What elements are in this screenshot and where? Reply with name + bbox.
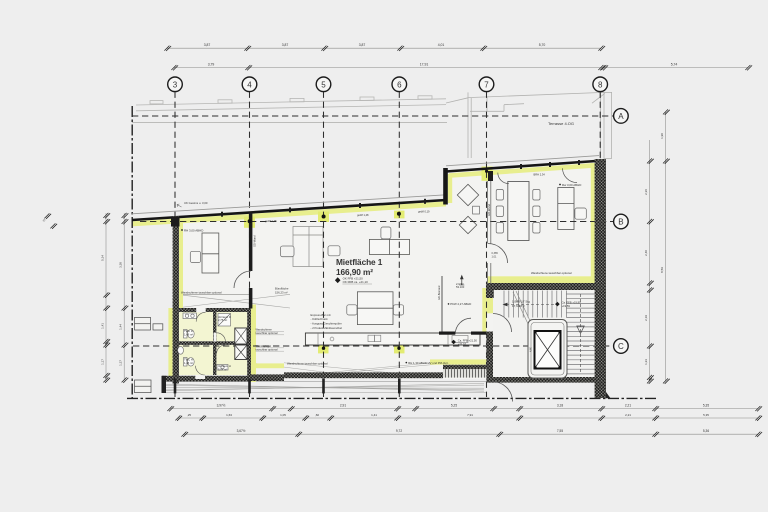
svg-text:geöff 0,19: geöff 0,19 [418,209,430,213]
svg-text:RH 3,00 ABHD: RH 3,00 ABHD [184,228,203,232]
svg-text:3,79: 3,79 [208,63,215,67]
svg-text:3: 3 [173,80,178,89]
svg-text:1,23: 1,23 [644,359,648,365]
svg-text:3,87: 3,87 [282,43,289,47]
svg-text:BRH 2,34: BRH 2,34 [534,172,546,176]
svg-text:1,46 m²: 1,46 m² [184,332,193,336]
svg-text:6: 6 [397,80,402,89]
svg-text:7: 7 [484,80,489,89]
svg-text:3,87: 3,87 [359,43,366,47]
svg-text:+21,10: +21,10 [458,342,467,346]
svg-text:8: 8 [598,80,603,89]
svg-text:GD-Wand: GD-Wand [252,235,256,247]
svg-text:4,60: 4,60 [530,347,533,352]
svg-text:Wandschiene tauschbar optional: Wandschiene tauschbar optional [181,290,222,294]
svg-text:7,91: 7,91 [467,413,473,417]
svg-text:5,34: 5,34 [100,255,104,261]
svg-text:17,91: 17,91 [420,63,429,67]
svg-text:8,59: 8,59 [660,267,664,273]
svg-text:OK RFB ca. +21,10: OK RFB ca. +21,10 [343,280,369,284]
svg-text:GD-Wand: GD-Wand [487,204,491,216]
svg-text:Mietfläche 1: Mietfläche 1 [336,257,383,267]
svg-text:166,90 m²: 166,90 m² [336,267,373,277]
svg-text:tauschbar optional: tauschbar optional [256,347,278,351]
svg-text:2,21: 2,21 [625,404,631,408]
svg-text:1,01: 1,01 [492,255,497,258]
svg-text:5,35: 5,35 [703,404,709,408]
svg-text:1,37: 1,37 [119,360,123,366]
svg-text:- Kühlschrank: - Kühlschrank [311,317,329,321]
svg-text:2,21: 2,21 [625,413,631,417]
svg-text:Wandschiene: Wandschiene [256,328,273,332]
svg-text:3,18: 3,18 [557,404,563,408]
svg-text:3,87: 3,87 [204,43,211,47]
svg-text:+19,59: +19,59 [562,304,571,308]
svg-text:1,05: 1,05 [280,413,286,417]
svg-text:1.BFB 17 Stg: 1.BFB 17 Stg [512,300,530,304]
svg-text:4,01: 4,01 [438,43,445,47]
svg-text:5,70: 5,70 [539,43,546,47]
svg-text:7,55: 7,55 [557,429,563,433]
svg-text:2,19: 2,19 [644,315,648,321]
svg-text:2,40: 2,40 [644,250,648,256]
svg-text:1,63: 1,63 [226,413,232,417]
svg-text:RH 1,30 ABHD UV und PM-Vert.: RH 1,30 ABHD UV und PM-Vert. [408,361,449,365]
svg-text:geöff 1,48: geöff 1,48 [357,213,369,217]
svg-text:5,25: 5,25 [451,404,457,408]
svg-text:Express-Bar mit:: Express-Bar mit: [311,313,332,317]
svg-text:5,74: 5,74 [671,63,678,67]
svg-text:Wandschiene tauschbar optional: Wandschiene tauschbar optional [531,271,572,275]
svg-text:UK Gesims u. 3,00: UK Gesims u. 3,00 [184,201,208,205]
svg-text:C: C [618,342,624,351]
svg-text:17,6/28,3: 17,6/28,3 [512,304,525,308]
svg-text:5,36: 5,36 [703,429,709,433]
svg-text:5,04 m²: 5,04 m² [218,368,227,372]
svg-text:A: A [618,112,624,121]
svg-text:PKW 2,27 ABHD: PKW 2,27 ABHD [450,302,471,306]
svg-text:3,97½: 3,97½ [217,404,226,408]
svg-text:3,67½: 3,67½ [237,429,246,433]
svg-text:Ca. FFB +19,99: Ca. FFB +19,99 [562,301,582,305]
svg-text:2,36: 2,36 [644,189,648,195]
svg-text:1,41: 1,41 [100,323,104,329]
svg-text:Wandspiegel: Wandspiegel [256,344,272,348]
svg-text:- Ausguss/Geschirrspüler: - Ausguss/Geschirrspüler [311,322,342,326]
svg-text:5: 5 [321,80,326,89]
svg-text:156,23 m²: 156,23 m² [275,290,288,294]
svg-text:3,38: 3,38 [119,262,123,268]
svg-text:tauschbar optional: tauschbar optional [256,331,278,335]
svg-text:geöff 1,48: geöff 1,48 [265,219,277,223]
svg-text:Rw 3,00 ABHD: Rw 3,00 ABHD [562,183,581,187]
svg-text:5,35: 5,35 [703,413,709,417]
svg-text:,60: ,60 [315,413,320,417]
svg-text:GD-Bestand: GD-Bestand [437,285,441,300]
svg-text:B: B [618,218,623,227]
svg-text:2,75 m²: 2,75 m² [218,318,227,322]
svg-text:4: 4 [247,80,252,89]
svg-text:1,46 m²: 1,46 m² [184,361,193,365]
svg-text:1,44: 1,44 [119,324,123,330]
svg-text:- 2 Podeste/Einbaumöbel: - 2 Podeste/Einbaumöbel [311,326,343,330]
svg-text:Terrasse 4.OG: Terrasse 4.OG [548,121,574,126]
svg-text:,25: ,25 [187,413,192,417]
svg-text:9,72: 9,72 [396,429,402,433]
svg-text:Ca. FFB +21,50: Ca. FFB +21,50 [458,339,478,343]
svg-text:2,91: 2,91 [340,404,346,408]
svg-text:1,17: 1,17 [100,359,104,365]
svg-text:Wandschiene tauschbar optional: Wandschiene tauschbar optional [287,362,328,366]
svg-text:53.100: 53.100 [456,285,465,289]
svg-text:1,41: 1,41 [371,413,377,417]
svg-text:1,90: 1,90 [660,133,664,139]
